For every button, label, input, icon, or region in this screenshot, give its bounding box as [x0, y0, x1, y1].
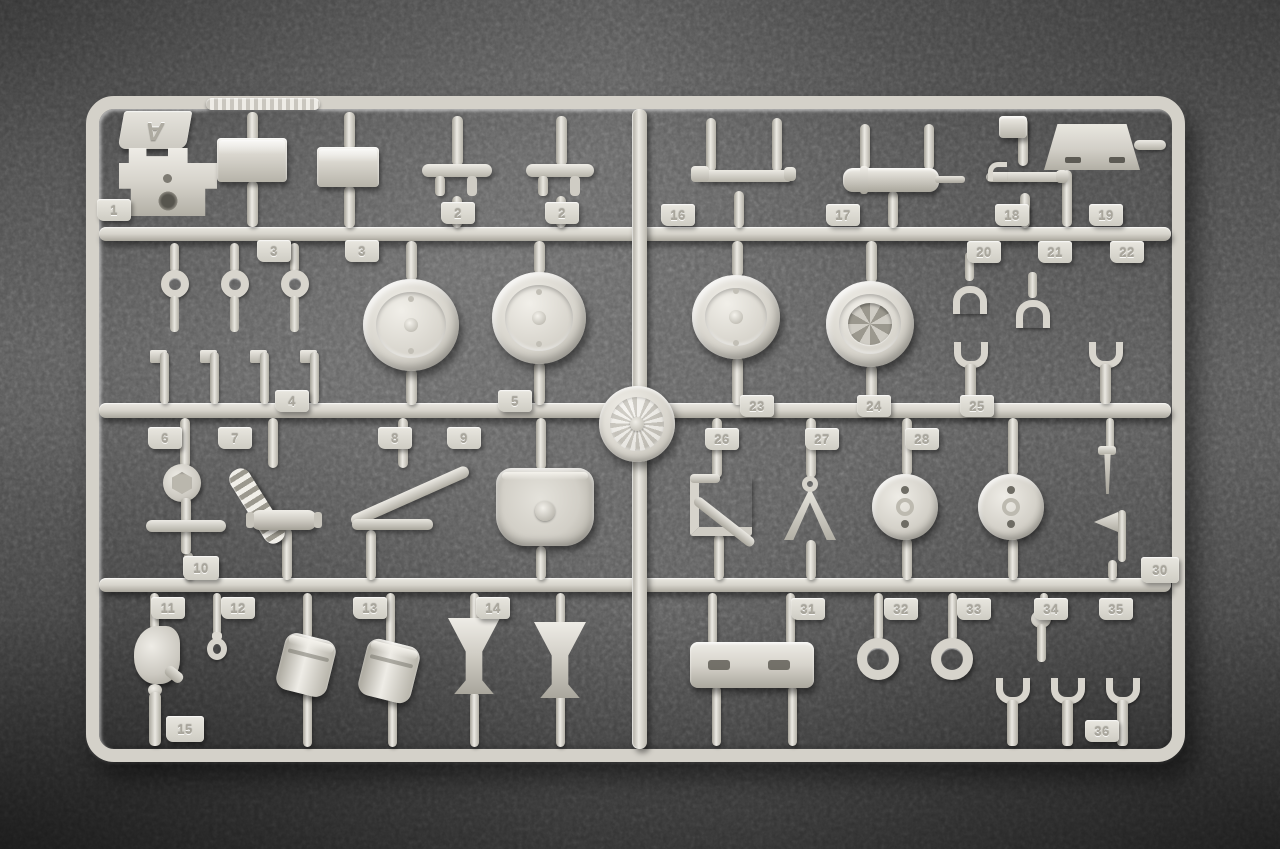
part-number-tab: 18 [995, 204, 1029, 226]
part-number: 13 [362, 601, 377, 616]
part-number-tab: 31 [791, 598, 825, 620]
stowage-box-part [217, 138, 287, 182]
flanged-pin-part [250, 350, 278, 404]
sprue-pin [708, 593, 717, 645]
cylinder-rod-part [843, 168, 939, 192]
tow-fork-part [989, 678, 1037, 746]
sprue-pin [470, 692, 479, 747]
part-number: 2 [454, 206, 462, 221]
shell-dome-part [496, 468, 594, 546]
ring-pin-part [276, 270, 314, 332]
part-number: 3 [270, 244, 278, 259]
part-number-tab: 21 [1038, 241, 1072, 263]
sprue-pin [734, 191, 744, 228]
screw-part [1092, 446, 1122, 494]
sprue-pin [948, 593, 957, 641]
road-wheel-part [492, 272, 586, 364]
part-number-tab: 12 [221, 597, 255, 619]
sprue-pin [1008, 418, 1018, 476]
road-wheel-part [363, 279, 459, 371]
part-number: 30 [1152, 563, 1167, 578]
part-number: 21 [1047, 245, 1062, 260]
part-number-tab: 30 [1141, 557, 1179, 583]
part-number: 3 [358, 244, 366, 259]
part-number-tab: 4 [275, 390, 309, 412]
part-number: 33 [966, 602, 981, 617]
part-number-tab: 14 [476, 597, 510, 619]
sprue-pin [706, 118, 716, 172]
part-number-tab: 32 [884, 598, 918, 620]
funnel-part [534, 622, 586, 698]
flanged-pin-part [200, 350, 228, 404]
hub-wheel-part [826, 281, 914, 367]
sprue-pin [1108, 560, 1117, 580]
sprue-pin [247, 181, 258, 227]
part-number-tab: 10 [183, 556, 219, 580]
sprue-pin [290, 243, 299, 273]
sprue-pin [268, 418, 278, 468]
clamp-part [134, 626, 180, 684]
part-number-tab: 15 [166, 716, 204, 742]
part-number-tab: 19 [1089, 204, 1123, 226]
part-number-tab: 28 [905, 428, 939, 450]
sprue-pin [534, 241, 545, 274]
sprue-pin [788, 686, 797, 746]
part-number: 24 [866, 399, 881, 414]
part-number: 19 [1098, 208, 1113, 223]
sprue-pin [344, 186, 355, 228]
sprue-pin [1008, 538, 1018, 580]
sprue-pin [536, 546, 546, 580]
sprue-pin [534, 362, 545, 405]
triangular-brace-part [352, 464, 468, 530]
sprue-pin [712, 686, 721, 746]
ring-part [857, 638, 899, 680]
part-number: 16 [670, 208, 685, 223]
part-number-tab: 3 [345, 240, 379, 262]
part-number-tab: 25 [960, 395, 994, 417]
part-number-tab: 13 [353, 597, 387, 619]
t-rod-part [526, 164, 594, 200]
part-number: 23 [749, 399, 764, 414]
part-number-tab: 8 [378, 427, 412, 449]
part-number: 15 [177, 722, 192, 737]
part-number: 18 [1004, 208, 1019, 223]
part-number: 7 [231, 431, 239, 446]
drum-part [356, 636, 422, 705]
sprue-pin [536, 418, 546, 470]
sprue-pin [874, 593, 883, 641]
part-number-tab: 2 [545, 202, 579, 224]
road-wheel-part [692, 275, 780, 359]
sprue-pin [388, 698, 397, 747]
part-number: 9 [460, 431, 468, 446]
hex-disc-part [163, 464, 201, 502]
part-number-tab: 17 [826, 204, 860, 226]
part-number-tab: 7 [218, 427, 252, 449]
mount-bracket-part [119, 148, 217, 216]
sprue-pin [556, 694, 565, 747]
sprue-pin [406, 369, 417, 405]
sprue-pin [170, 243, 179, 273]
sprue-pin [714, 534, 724, 580]
ring-pin-part [156, 270, 194, 332]
sprue-parts-layer: 1223345678910111213141516171819202122232… [0, 0, 1280, 849]
hooked-rod-part [986, 172, 1066, 182]
part-number-tab: 5 [498, 390, 532, 412]
flanged-pin-part [150, 350, 178, 404]
sprue-pin [386, 593, 395, 645]
photo-model-kit-sprue: A 12233456789101112131415161718192021222… [0, 0, 1280, 849]
sprue-pin [213, 593, 221, 635]
part-number: 10 [193, 561, 208, 576]
part-number: 27 [814, 432, 829, 447]
hull-plate-part [1044, 124, 1140, 170]
part-number-tab: 6 [148, 427, 182, 449]
part-number: 34 [1043, 602, 1058, 617]
holed-disc-part [978, 474, 1044, 540]
sprue-pin [860, 124, 870, 170]
part-number: 26 [714, 432, 729, 447]
part-number-tab: 36 [1085, 720, 1119, 742]
sprue-pin [806, 540, 816, 580]
nozzle-part [143, 684, 167, 746]
part-number: 12 [230, 601, 245, 616]
part-number: 22 [1119, 245, 1134, 260]
eyelet-hook-part [203, 632, 231, 678]
part-number-tab: 26 [705, 428, 739, 450]
tripod-mount-part [784, 476, 836, 540]
part-number-tab: 24 [857, 395, 891, 417]
part-number: 6 [161, 431, 169, 446]
sprue-pin [902, 538, 912, 580]
part-number: 32 [893, 602, 908, 617]
part-number: 11 [161, 601, 176, 616]
part-number: 25 [969, 399, 984, 414]
small-block-part [999, 116, 1027, 138]
part-number: 1 [110, 203, 118, 218]
part-number: 20 [976, 245, 991, 260]
part-number-tab: 23 [740, 395, 774, 417]
part-number-tab: 22 [1110, 241, 1144, 263]
drum-part [274, 631, 338, 700]
holed-disc-part [872, 474, 938, 540]
rail-part [690, 642, 814, 688]
sprue-pin [556, 116, 567, 166]
sprue-pin [556, 593, 565, 625]
part-number: 8 [391, 431, 399, 446]
part-number: 14 [485, 601, 500, 616]
coil-spring-part [225, 465, 288, 548]
part-number-tab: 35 [1099, 598, 1133, 620]
sprue-pin [732, 241, 743, 277]
part-number-tab: 27 [805, 428, 839, 450]
sprue-pin [303, 692, 312, 747]
funnel-part [448, 618, 500, 694]
part-number: 5 [511, 394, 519, 409]
sprue-pin [772, 118, 782, 172]
z-bracket-part [690, 476, 752, 536]
part-number: 17 [835, 208, 850, 223]
sprue-pin [888, 191, 898, 228]
flag-bracket-part [1094, 510, 1132, 562]
part-number-tab: 9 [447, 427, 481, 449]
part-number-tab: 2 [441, 202, 475, 224]
ring-part [931, 638, 973, 680]
ring-pin-part [216, 270, 254, 332]
part-number-tab: 1 [97, 199, 131, 221]
sprue-pin [344, 112, 355, 150]
stowage-box-part [317, 147, 379, 187]
sprue-pin [452, 116, 463, 166]
clevis-fork-part [1009, 272, 1057, 328]
part-number: 4 [288, 394, 296, 409]
sprue-pin [366, 530, 376, 580]
part-number-tab: 34 [1034, 598, 1068, 620]
small-cylinder-part [251, 510, 317, 530]
sprue-pin [303, 593, 312, 639]
sprue-pin [230, 243, 239, 273]
part-number: 31 [800, 602, 815, 617]
part-number-tab: 16 [661, 204, 695, 226]
part-number-tab: 33 [957, 598, 991, 620]
tow-fork-part [1081, 342, 1131, 404]
cross-lever-part [146, 498, 226, 554]
sprue-pin [406, 241, 417, 281]
part-number: 2 [558, 206, 566, 221]
part-number-tab: 3 [257, 240, 291, 262]
sprue-pin [866, 241, 877, 283]
linkage-rod-part [695, 170, 793, 182]
part-number: 35 [1108, 602, 1123, 617]
sprue-pin [924, 124, 934, 170]
part-number: 36 [1094, 724, 1109, 739]
sprue-pin [1134, 140, 1166, 150]
part-number: 28 [914, 432, 929, 447]
part-number-tab: 20 [967, 241, 1001, 263]
part-number-tab: 11 [151, 597, 185, 619]
t-rod-part [422, 164, 492, 200]
